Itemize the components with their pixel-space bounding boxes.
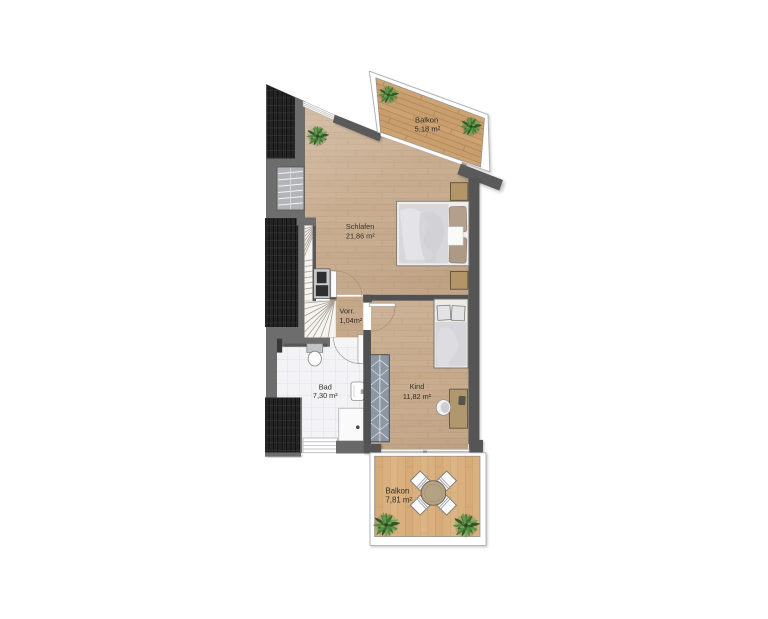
svg-text:Vorr.: Vorr. bbox=[340, 307, 355, 316]
svg-text:21,86 m²: 21,86 m² bbox=[346, 231, 375, 240]
svg-text:Bad: Bad bbox=[319, 382, 332, 391]
svg-text:Schlafen: Schlafen bbox=[346, 222, 374, 231]
svg-text:11,82 m²: 11,82 m² bbox=[403, 392, 432, 401]
svg-text:Balkon: Balkon bbox=[415, 115, 438, 124]
svg-text:Balkon: Balkon bbox=[386, 486, 410, 495]
svg-text:5,18 m²: 5,18 m² bbox=[415, 125, 441, 134]
svg-text:7,30 m²: 7,30 m² bbox=[313, 391, 338, 400]
svg-text:Kind: Kind bbox=[410, 382, 425, 391]
svg-text:1,04m²: 1,04m² bbox=[340, 316, 363, 325]
svg-text:7,81 m²: 7,81 m² bbox=[386, 496, 413, 505]
